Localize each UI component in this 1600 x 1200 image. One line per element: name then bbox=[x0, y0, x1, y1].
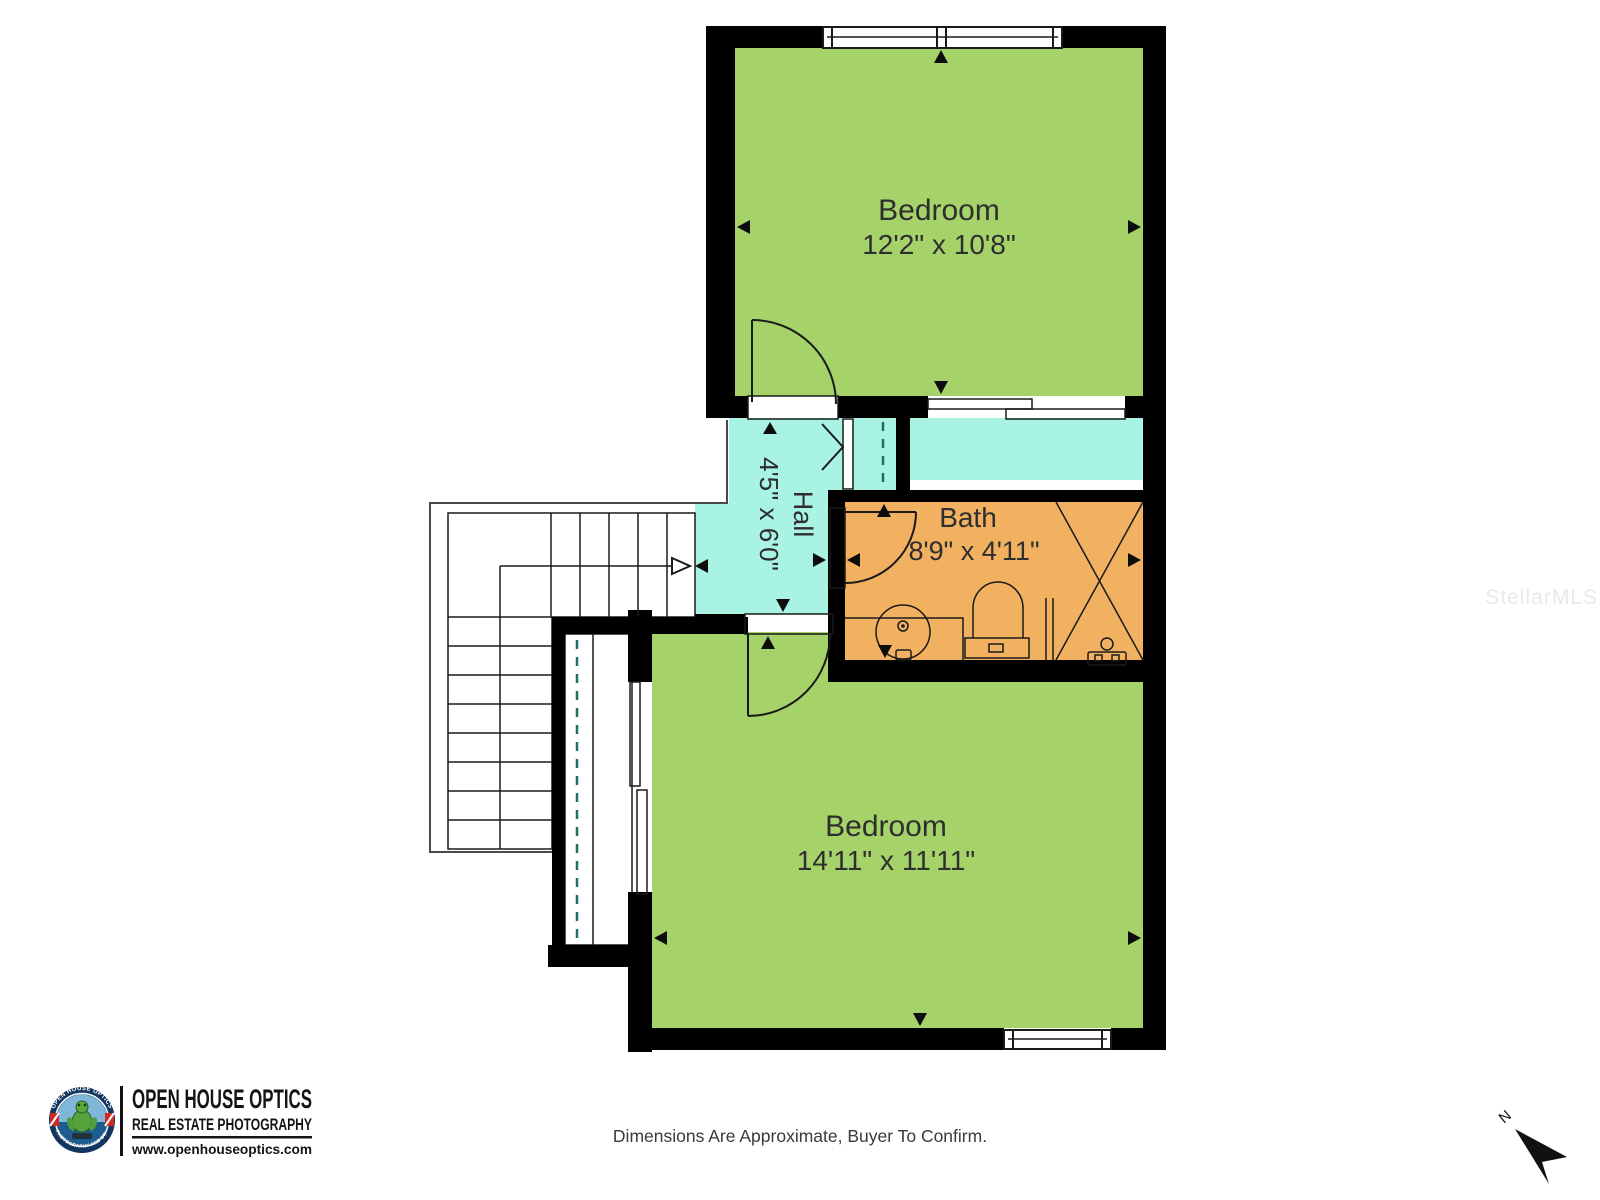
logo-badge: OPEN HOUSE OPTICS 3D PHOTOGRAPHY AND DRO… bbox=[0, 0, 115, 1153]
bedroom-top-door-opening bbox=[748, 396, 838, 419]
linen-door-opening bbox=[843, 419, 853, 489]
logo-website: www.openhouseoptics.com bbox=[131, 1142, 312, 1157]
sliding-door-closet-top bbox=[928, 399, 1125, 419]
closet-strip-rods bbox=[577, 634, 593, 945]
page: Bedroom 12'2" x 10'8" Hall 4'5" x 6'0" B… bbox=[0, 0, 1600, 1200]
bath-dims: 8'9" x 4'11" bbox=[908, 536, 1039, 566]
disclaimer-text: Dimensions Are Approximate, Buyer To Con… bbox=[613, 1126, 987, 1146]
bath-label: Bath bbox=[939, 502, 997, 533]
room-linen-closet bbox=[853, 418, 896, 490]
logo-rule bbox=[132, 1136, 312, 1139]
bedroom-bottom-label: Bedroom bbox=[825, 810, 947, 843]
hall-dims: 4'5" x 6'0" bbox=[754, 457, 784, 571]
logo-divider bbox=[120, 1086, 123, 1156]
bedroom-bottom-dims: 14'11" x 11'11" bbox=[797, 845, 975, 876]
bedroom-top-dims: 12'2" x 10'8" bbox=[862, 229, 1016, 260]
window-bedroom-bottom bbox=[1004, 1030, 1111, 1049]
window-bedroom-top bbox=[823, 27, 1062, 48]
stair-direction-arrow-icon bbox=[672, 558, 690, 574]
north-arrow-icon bbox=[1515, 1129, 1567, 1184]
watermark-text: StellarMLS bbox=[1485, 586, 1598, 609]
north-label: N bbox=[1496, 1107, 1515, 1127]
floorplan-canvas: Bedroom 12'2" x 10'8" Hall 4'5" x 6'0" B… bbox=[0, 0, 1600, 1200]
logo: OPEN HOUSE OPTICS 3D PHOTOGRAPHY AND DRO… bbox=[0, 0, 312, 1157]
hall-label: Hall bbox=[788, 491, 818, 538]
room-closet-strip bbox=[565, 634, 632, 945]
north-compass: N bbox=[1496, 1107, 1567, 1184]
badge-bottom-text: 3D PHOTOGRAPHY AND DRONE bbox=[0, 0, 109, 1150]
bedroom-top-label: Bedroom bbox=[878, 194, 1000, 227]
logo-subtitle: REAL ESTATE PHOTOGRAPHY bbox=[132, 1116, 312, 1134]
room-closet-top bbox=[910, 418, 1143, 480]
logo-title: OPEN HOUSE OPTICS bbox=[132, 1084, 312, 1114]
bedroom-bottom-door-opening bbox=[745, 614, 833, 634]
